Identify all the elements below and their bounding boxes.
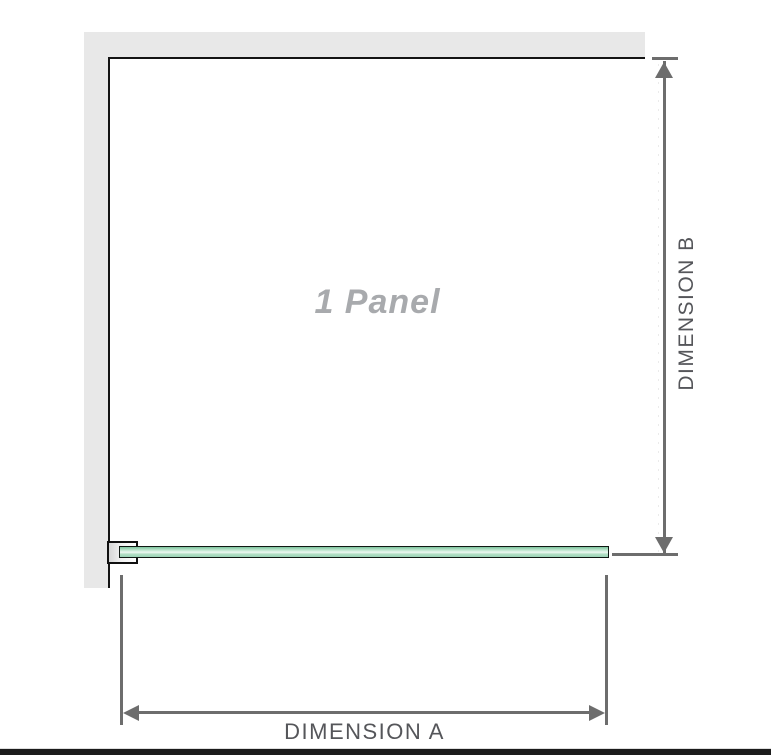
dim-b-dashed-guide bbox=[658, 64, 659, 552]
panel-area: 1 Panel bbox=[110, 59, 645, 545]
dim-a-extension-right bbox=[605, 575, 608, 725]
dim-a-extension-left bbox=[120, 575, 123, 725]
dim-a-line bbox=[128, 711, 601, 714]
panel-label: 1 Panel bbox=[314, 283, 440, 322]
dim-a-label: DIMENSION A bbox=[121, 719, 608, 745]
dim-b-label: DIMENSION B bbox=[675, 235, 699, 390]
wall-left bbox=[84, 32, 108, 588]
dim-b-arrowhead-top bbox=[655, 62, 673, 78]
dim-b-bottom-tick bbox=[612, 553, 678, 556]
dim-b-line bbox=[663, 61, 666, 553]
glass-panel bbox=[119, 546, 609, 558]
dim-b-top-tick bbox=[652, 57, 678, 60]
footer-bar bbox=[0, 749, 771, 755]
wall-top bbox=[84, 32, 645, 57]
dim-b-arrowhead-bottom bbox=[655, 537, 673, 553]
diagram-canvas: 1 Panel DIMENSION B DIMENSION A bbox=[0, 0, 771, 755]
